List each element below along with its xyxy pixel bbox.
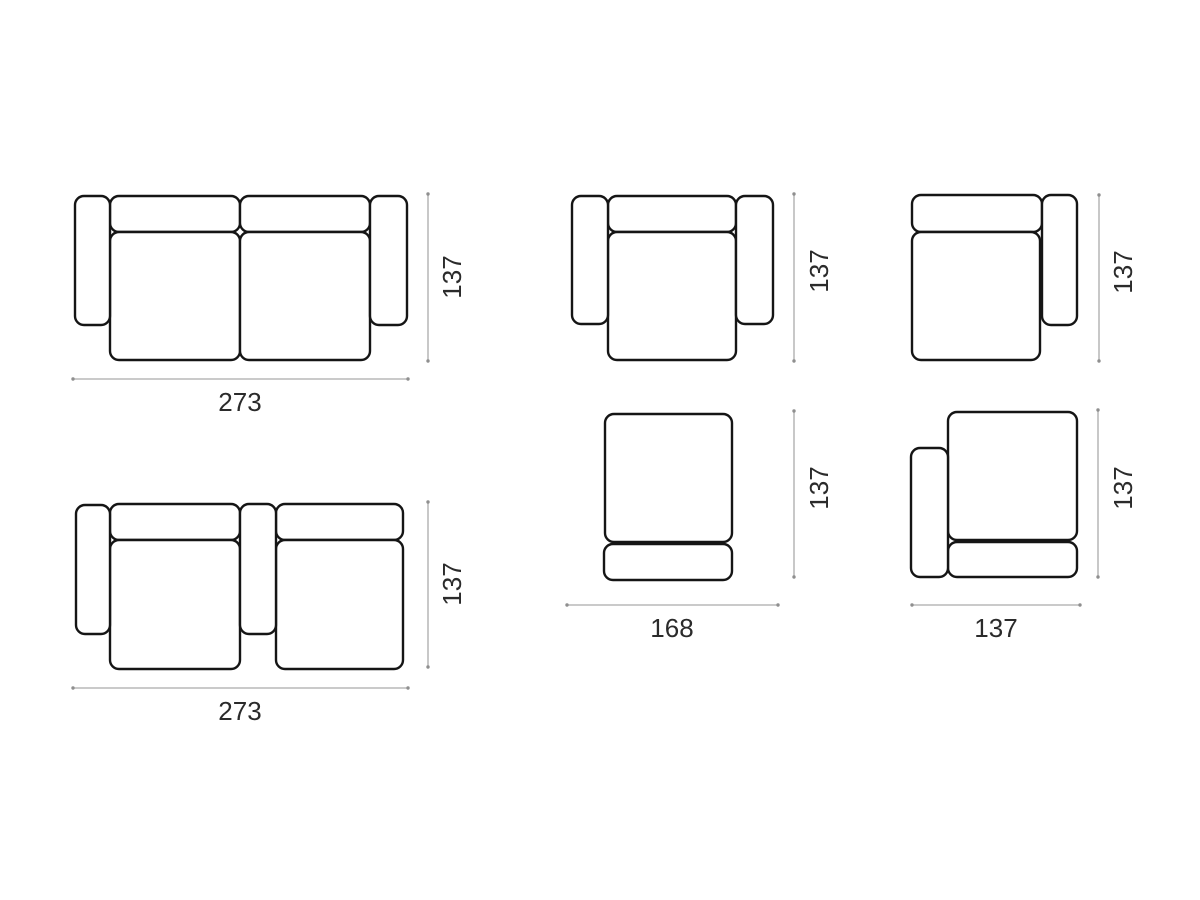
sofa2-backrest-right — [276, 504, 403, 540]
dimension-endcap — [426, 500, 429, 503]
depth-label: 137 — [437, 255, 467, 298]
sofa-arm-right — [370, 196, 407, 325]
dimension-endcap — [406, 377, 409, 380]
sofa-arm-left — [75, 196, 110, 325]
dimension-endcap — [71, 686, 74, 689]
dimension-endcap — [1096, 408, 1099, 411]
sofa-backrest-right — [240, 196, 370, 232]
width-label: 273 — [218, 387, 261, 417]
armchair-arm-right — [736, 196, 773, 324]
module2-seat — [948, 412, 1077, 540]
dimension-endcap — [792, 409, 795, 412]
ottoman-seat — [605, 414, 732, 542]
dimension-endcap — [426, 359, 429, 362]
dimension-endcap — [792, 575, 795, 578]
sofa-seat-left — [110, 232, 240, 360]
sofa-seat-right — [240, 232, 370, 360]
depth-label: 137 — [1108, 466, 1138, 509]
sofa-backrest-left — [110, 196, 240, 232]
diagram-armchair: 137 — [572, 192, 834, 362]
diagram-canvas: 137 273 137 137 — [0, 0, 1200, 900]
dimension-endcap — [910, 603, 913, 606]
depth-label: 137 — [804, 466, 834, 509]
dimension-endcap — [1097, 359, 1100, 362]
diagram-two-seat-sofa-center-arm: 137 273 — [71, 500, 467, 726]
dimension-endcap — [426, 665, 429, 668]
diagram-ottoman: 137 168 — [565, 409, 834, 643]
armchair-seat — [608, 232, 736, 360]
sofa2-arm-center — [240, 504, 276, 634]
ottoman-strip — [604, 544, 732, 580]
width-label: 137 — [974, 613, 1017, 643]
sofa2-seat-right — [276, 540, 403, 669]
depth-label: 137 — [804, 249, 834, 292]
module-arm-right — [1042, 195, 1077, 325]
width-label: 273 — [218, 696, 261, 726]
dimension-endcap — [565, 603, 568, 606]
dimension-endcap — [776, 603, 779, 606]
width-label: 168 — [650, 613, 693, 643]
furniture-dimension-sheet: 137 273 137 137 — [0, 0, 1200, 900]
module2-strip — [948, 542, 1077, 577]
diagram-two-seat-sofa: 137 273 — [71, 192, 467, 417]
dimension-endcap — [792, 359, 795, 362]
dimension-endcap — [1097, 193, 1100, 196]
dimension-endcap — [792, 192, 795, 195]
module2-arm-left — [911, 448, 948, 577]
diagram-module-right-arm: 137 — [912, 193, 1138, 362]
dimension-endcap — [71, 377, 74, 380]
dimension-endcap — [406, 686, 409, 689]
depth-label: 137 — [437, 562, 467, 605]
diagram-module-left-arm: 137 137 — [910, 408, 1138, 643]
sofa2-seat-left — [110, 540, 240, 669]
sofa2-backrest-left — [110, 504, 240, 540]
sofa2-arm-left — [76, 505, 110, 634]
module-backrest — [912, 195, 1042, 232]
depth-label: 137 — [1108, 250, 1138, 293]
dimension-endcap — [1078, 603, 1081, 606]
armchair-backrest — [608, 196, 736, 232]
dimension-endcap — [426, 192, 429, 195]
module-seat — [912, 232, 1040, 360]
dimension-endcap — [1096, 575, 1099, 578]
armchair-arm-left — [572, 196, 608, 324]
